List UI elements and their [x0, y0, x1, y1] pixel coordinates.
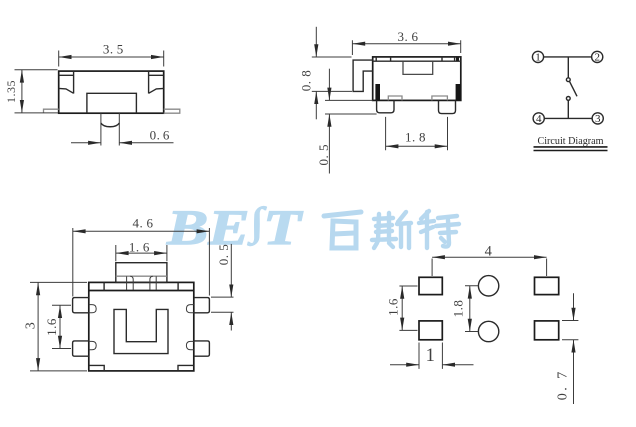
svg-text:0. 5: 0. 5 — [316, 144, 331, 166]
svg-text:3: 3 — [24, 322, 39, 330]
svg-text:1: 1 — [426, 346, 436, 366]
svg-text:0. 7: 0. 7 — [556, 369, 571, 400]
svg-text:1.8: 1.8 — [405, 130, 426, 145]
svg-text:1.6: 1.6 — [386, 298, 401, 316]
svg-text:2: 2 — [594, 52, 600, 64]
svg-text:4: 4 — [485, 244, 493, 260]
svg-text:1.6: 1.6 — [44, 318, 59, 336]
svg-text:4: 4 — [536, 113, 542, 125]
svg-text:0. 8: 0. 8 — [299, 70, 314, 92]
svg-text:BE∫T: BE∫T — [166, 199, 304, 255]
svg-text:3.6: 3.6 — [398, 29, 419, 44]
svg-text:4.6: 4.6 — [133, 216, 154, 231]
svg-text:Circuit Diagram: Circuit Diagram — [538, 135, 604, 147]
svg-text:3: 3 — [595, 113, 601, 125]
svg-text:1.35: 1.35 — [4, 80, 18, 103]
svg-text:1: 1 — [535, 52, 541, 64]
svg-text:1.6: 1.6 — [129, 239, 150, 254]
svg-text:0.6: 0.6 — [150, 128, 170, 143]
svg-text:0. 5: 0. 5 — [216, 244, 231, 266]
svg-text:1.8: 1.8 — [451, 300, 466, 318]
svg-text:3.5: 3.5 — [103, 42, 124, 57]
